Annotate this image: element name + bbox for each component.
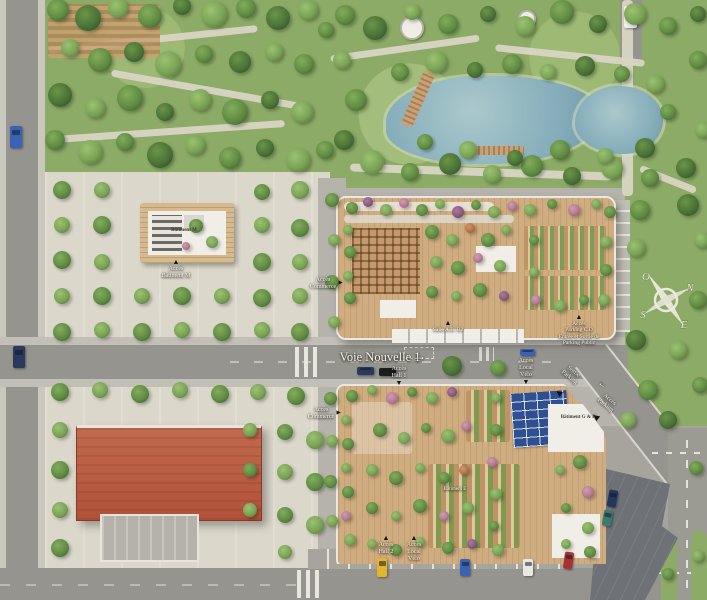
tree: [490, 488, 502, 500]
tree: [291, 219, 309, 237]
tree: [529, 235, 539, 245]
salle-ab-b2: ▲Salle A.B. B2: [433, 320, 463, 333]
tree: [524, 204, 536, 216]
tree: [366, 502, 378, 514]
tree: [620, 412, 636, 428]
tree: [659, 17, 677, 35]
tree: [669, 341, 687, 359]
acces-commerce-north: AccèsCommerce►: [310, 277, 336, 291]
tree: [442, 356, 462, 376]
tree: [391, 63, 409, 81]
tree: [425, 51, 447, 73]
tree: [561, 503, 571, 513]
label-line: Commerce: [308, 414, 334, 421]
tree: [550, 0, 574, 24]
tree: [389, 471, 403, 485]
crosswalk: [479, 347, 494, 361]
tree: [156, 103, 174, 121]
acces-hall-1: AccèsHall 1▼: [392, 366, 407, 387]
tree: [343, 225, 353, 235]
tree: [438, 472, 450, 484]
tree: [173, 287, 191, 305]
tree: [490, 424, 502, 436]
tree: [416, 204, 428, 216]
tree: [211, 385, 229, 403]
acces-hall-2: ▲AccèsHall 2: [379, 535, 394, 556]
tree: [201, 1, 227, 27]
compass-east: E: [680, 319, 688, 331]
tree: [439, 511, 449, 521]
tree: [630, 200, 650, 220]
tree: [435, 199, 445, 209]
tree: [441, 429, 455, 443]
tree: [425, 225, 439, 239]
tree: [413, 499, 427, 513]
tree: [373, 423, 387, 437]
tree: [561, 539, 571, 549]
label-line: Bâtiment M: [162, 273, 191, 280]
north-building-canopy: [344, 215, 514, 223]
tree: [689, 51, 707, 69]
tree: [404, 4, 420, 20]
tree: [499, 291, 509, 301]
tree: [292, 254, 308, 270]
batiment-e: Bâtiment E: [444, 487, 467, 493]
access-arrow-down-icon: ▼: [519, 380, 534, 385]
tree: [213, 323, 231, 341]
tree: [52, 502, 68, 518]
compass-west: O: [642, 271, 650, 283]
tree: [243, 503, 257, 517]
tree: [277, 424, 293, 440]
tree: [452, 206, 464, 218]
tree: [461, 421, 471, 431]
road-direction-arrow: →: [414, 349, 426, 363]
car-windshield: [462, 562, 469, 566]
lane-marking: [686, 440, 688, 600]
tree: [467, 62, 483, 78]
access-arrow-right-icon: ►: [337, 280, 344, 287]
car: [10, 126, 22, 148]
tree: [155, 51, 181, 77]
warehouse-red-roof: [76, 425, 262, 521]
tree: [306, 431, 324, 449]
tree: [689, 461, 703, 475]
tree: [480, 6, 496, 22]
car-windshield: [360, 368, 372, 370]
tree: [399, 198, 409, 208]
access-arrow-up-icon: ▲: [559, 315, 600, 320]
tree: [45, 130, 65, 150]
tree: [195, 45, 213, 63]
tree: [367, 385, 377, 395]
car-windshield: [566, 555, 573, 560]
tree: [677, 194, 699, 216]
tree: [589, 15, 607, 33]
tree: [646, 75, 664, 93]
label-line: Parking Public: [559, 340, 600, 346]
tree: [174, 322, 190, 338]
access-arrow-up-icon: ▲: [433, 321, 463, 326]
label-line: Commerce: [310, 284, 336, 291]
tree: [507, 201, 517, 211]
tree: [287, 387, 305, 405]
tree: [600, 264, 612, 276]
tree: [92, 382, 108, 398]
tree: [51, 461, 69, 479]
tree: [325, 193, 339, 207]
tree: [398, 432, 410, 444]
tree: [531, 295, 541, 305]
tree: [326, 435, 338, 447]
tree: [584, 546, 596, 558]
tree: [254, 217, 270, 233]
tree: [306, 516, 324, 534]
tree: [94, 182, 110, 198]
tree: [243, 423, 257, 437]
car-windshield: [379, 561, 386, 566]
tree: [75, 5, 101, 31]
tree: [93, 216, 111, 234]
tree: [598, 294, 610, 306]
label-line: Bâtiment G & F: [561, 415, 596, 421]
tree: [342, 486, 354, 498]
tree: [627, 239, 645, 257]
tree: [421, 423, 431, 433]
tree: [341, 463, 351, 473]
tree: [459, 465, 469, 475]
tree: [61, 39, 79, 57]
tree: [182, 242, 190, 250]
tree: [53, 323, 71, 341]
tree: [277, 507, 293, 523]
tree: [54, 288, 70, 304]
acces-commerce-south: AccèsCommerce►: [308, 407, 334, 421]
tree: [555, 465, 565, 475]
tree: [540, 64, 556, 80]
tree: [462, 502, 474, 514]
tree: [363, 197, 373, 207]
tree: [507, 150, 523, 166]
warehouse-annex: [100, 514, 199, 562]
tree: [138, 4, 162, 28]
tree: [116, 133, 134, 151]
tree: [286, 148, 310, 172]
car-windshield: [605, 512, 612, 517]
label-line: Vélo: [407, 556, 422, 563]
tree: [391, 511, 401, 521]
tree: [417, 134, 433, 150]
tree: [563, 167, 581, 185]
road-label-voie-nouvelle-1: Voie Nouvelle 1: [339, 350, 420, 365]
tree: [690, 6, 706, 22]
crosswalk: [297, 570, 321, 598]
site-plan-canvas: O N S E Voie Nouvelle 1→▲AccèsBâtiment M…: [0, 0, 707, 600]
batiment-m-label: Bâtiment M: [171, 228, 197, 234]
tree: [318, 22, 334, 38]
tree: [306, 473, 324, 491]
tree: [638, 380, 658, 400]
tree: [554, 300, 566, 312]
car: [357, 367, 374, 375]
tree: [291, 101, 313, 123]
tree: [451, 291, 461, 301]
tree: [222, 99, 248, 125]
west-road: [0, 0, 45, 600]
tree: [47, 0, 69, 21]
tree: [494, 260, 506, 272]
car: [377, 558, 387, 577]
batiment-g-f: Bâtiment G & F: [561, 415, 596, 421]
tree: [256, 139, 274, 157]
tree: [335, 5, 355, 25]
tree: [214, 288, 230, 304]
compass-rose: O N S E: [626, 258, 706, 340]
tree: [266, 6, 290, 30]
tree: [451, 261, 465, 275]
tree: [52, 422, 68, 438]
tree: [278, 545, 292, 559]
tree: [185, 135, 205, 155]
tree: [131, 385, 149, 403]
tree: [253, 289, 271, 307]
tree: [401, 163, 419, 181]
green-verge: [691, 530, 707, 600]
tree: [360, 150, 384, 174]
tree: [117, 85, 143, 111]
compass-north: N: [685, 282, 694, 294]
tree: [254, 184, 270, 200]
tree: [430, 256, 442, 268]
lane-marking: [652, 452, 704, 454]
car: [520, 349, 535, 356]
tree: [695, 122, 707, 138]
tree: [51, 383, 69, 401]
car-windshield: [15, 350, 23, 355]
label-line: Voie Nouvelle 1: [339, 350, 420, 365]
tree: [604, 206, 616, 218]
label-line: →: [414, 349, 426, 363]
tree: [291, 181, 309, 199]
crosswalk: [295, 347, 322, 377]
tree: [471, 200, 481, 210]
tree: [147, 142, 173, 168]
tree: [641, 169, 659, 187]
tree: [345, 89, 367, 111]
tree: [333, 51, 351, 69]
tree: [415, 463, 425, 473]
roof-garden-beds: [524, 226, 606, 270]
tree: [324, 475, 337, 488]
tree: [694, 232, 707, 248]
access-arrow-up-icon: ▲: [379, 536, 394, 541]
label-line: Bâtiment E: [444, 487, 467, 493]
tree: [88, 48, 112, 72]
tree: [426, 286, 438, 298]
tree: [692, 550, 704, 562]
car-windshield: [610, 493, 617, 498]
acces-local-velo-south: ▲AccèsLocalVélo: [407, 535, 422, 563]
tree: [219, 147, 241, 169]
tree: [48, 83, 72, 107]
tree: [54, 217, 70, 233]
tree: [662, 568, 674, 580]
car-windshield: [525, 562, 532, 566]
tree: [447, 387, 457, 397]
tree: [53, 181, 71, 199]
tree: [334, 130, 354, 150]
tree: [346, 202, 358, 214]
tree: [676, 158, 696, 178]
tree: [438, 14, 458, 34]
acces-batiment-m: ▲AccèsBâtiment M: [162, 259, 191, 280]
tree: [134, 288, 150, 304]
acces-local-velo-north: AccèsLocalVélo▼: [519, 358, 534, 386]
roof-garden-beds: [466, 390, 510, 442]
tree: [265, 43, 283, 61]
tree: [446, 234, 458, 246]
acces-parking-cd: ▲AccèsParking C.DEntrée et Sortie dePark…: [559, 314, 600, 347]
tree: [515, 16, 535, 36]
car: [13, 346, 25, 368]
tree: [366, 464, 378, 476]
access-arrow-down-icon: ▼: [392, 381, 407, 386]
tree: [492, 544, 504, 556]
tree: [501, 225, 511, 235]
tree: [380, 204, 392, 216]
tree: [529, 267, 539, 277]
tree: [597, 148, 613, 164]
tree: [294, 54, 314, 74]
tree: [243, 463, 257, 477]
tree: [78, 140, 102, 164]
tree: [292, 288, 308, 304]
tree: [568, 204, 580, 216]
tree: [261, 91, 279, 109]
tree: [254, 322, 270, 338]
tree: [124, 42, 144, 62]
tree: [591, 199, 601, 209]
tree: [575, 56, 595, 76]
tree: [344, 534, 356, 546]
tree: [473, 283, 487, 297]
tree: [582, 486, 594, 498]
car-windshield: [522, 350, 533, 352]
tree: [547, 199, 557, 209]
tree: [94, 254, 110, 270]
tree: [550, 140, 570, 160]
car: [523, 559, 533, 576]
tree: [521, 155, 543, 177]
tree: [328, 316, 340, 328]
roof-pergola: [352, 228, 420, 294]
tree: [407, 387, 417, 397]
tree: [487, 457, 497, 467]
tree: [341, 511, 351, 521]
tree: [363, 16, 387, 40]
tree: [635, 138, 655, 158]
tree: [491, 393, 501, 403]
car: [460, 559, 470, 576]
tree: [465, 223, 475, 233]
tree: [53, 251, 71, 269]
roof-terrace: [380, 300, 416, 318]
tree: [189, 89, 211, 111]
tree: [206, 236, 218, 248]
tree: [442, 542, 454, 554]
tree: [172, 382, 188, 398]
tree: [489, 521, 499, 531]
tree: [324, 392, 337, 405]
tree: [660, 104, 676, 120]
tree: [291, 323, 309, 341]
tree: [624, 3, 646, 25]
tree: [692, 377, 707, 393]
access-arrow-up-icon: ▲: [162, 260, 191, 265]
label-line: Hall 2: [379, 549, 394, 556]
tree: [94, 322, 110, 338]
tree: [579, 295, 589, 305]
tree: [344, 246, 356, 258]
lane-marking: [0, 584, 300, 586]
tree: [488, 206, 500, 218]
tree: [346, 390, 358, 402]
compass-south: S: [640, 309, 646, 321]
tree: [490, 360, 506, 376]
tree: [659, 411, 677, 429]
tree: [473, 253, 483, 263]
tree: [614, 66, 630, 82]
tree: [328, 234, 340, 246]
tree: [573, 455, 587, 469]
tree: [253, 253, 271, 271]
tree: [426, 392, 438, 404]
tree: [229, 51, 251, 73]
tree: [51, 539, 69, 557]
tree: [93, 287, 111, 305]
car-windshield: [12, 130, 20, 135]
tree: [600, 236, 612, 248]
label-line: Bâtiment M: [171, 228, 197, 234]
tree: [481, 233, 495, 247]
tree: [582, 522, 594, 534]
access-arrow-right-icon: ►: [335, 410, 342, 417]
tree: [459, 141, 477, 159]
tree: [326, 515, 338, 527]
tree: [343, 271, 353, 281]
tree: [483, 165, 501, 183]
tree: [277, 464, 293, 480]
access-arrow-up-icon: ▲: [407, 536, 422, 541]
tree: [502, 54, 522, 74]
tree: [133, 323, 151, 341]
tree: [344, 292, 356, 304]
tree: [250, 384, 266, 400]
tree: [386, 392, 398, 404]
label-line: Salle A.B. B2: [433, 327, 463, 333]
tree: [341, 415, 351, 425]
tree: [342, 438, 354, 450]
tree: [298, 0, 318, 20]
tree: [439, 153, 461, 175]
tree: [467, 539, 477, 549]
tree: [316, 141, 334, 159]
tree: [85, 98, 105, 118]
tree: [367, 539, 377, 549]
